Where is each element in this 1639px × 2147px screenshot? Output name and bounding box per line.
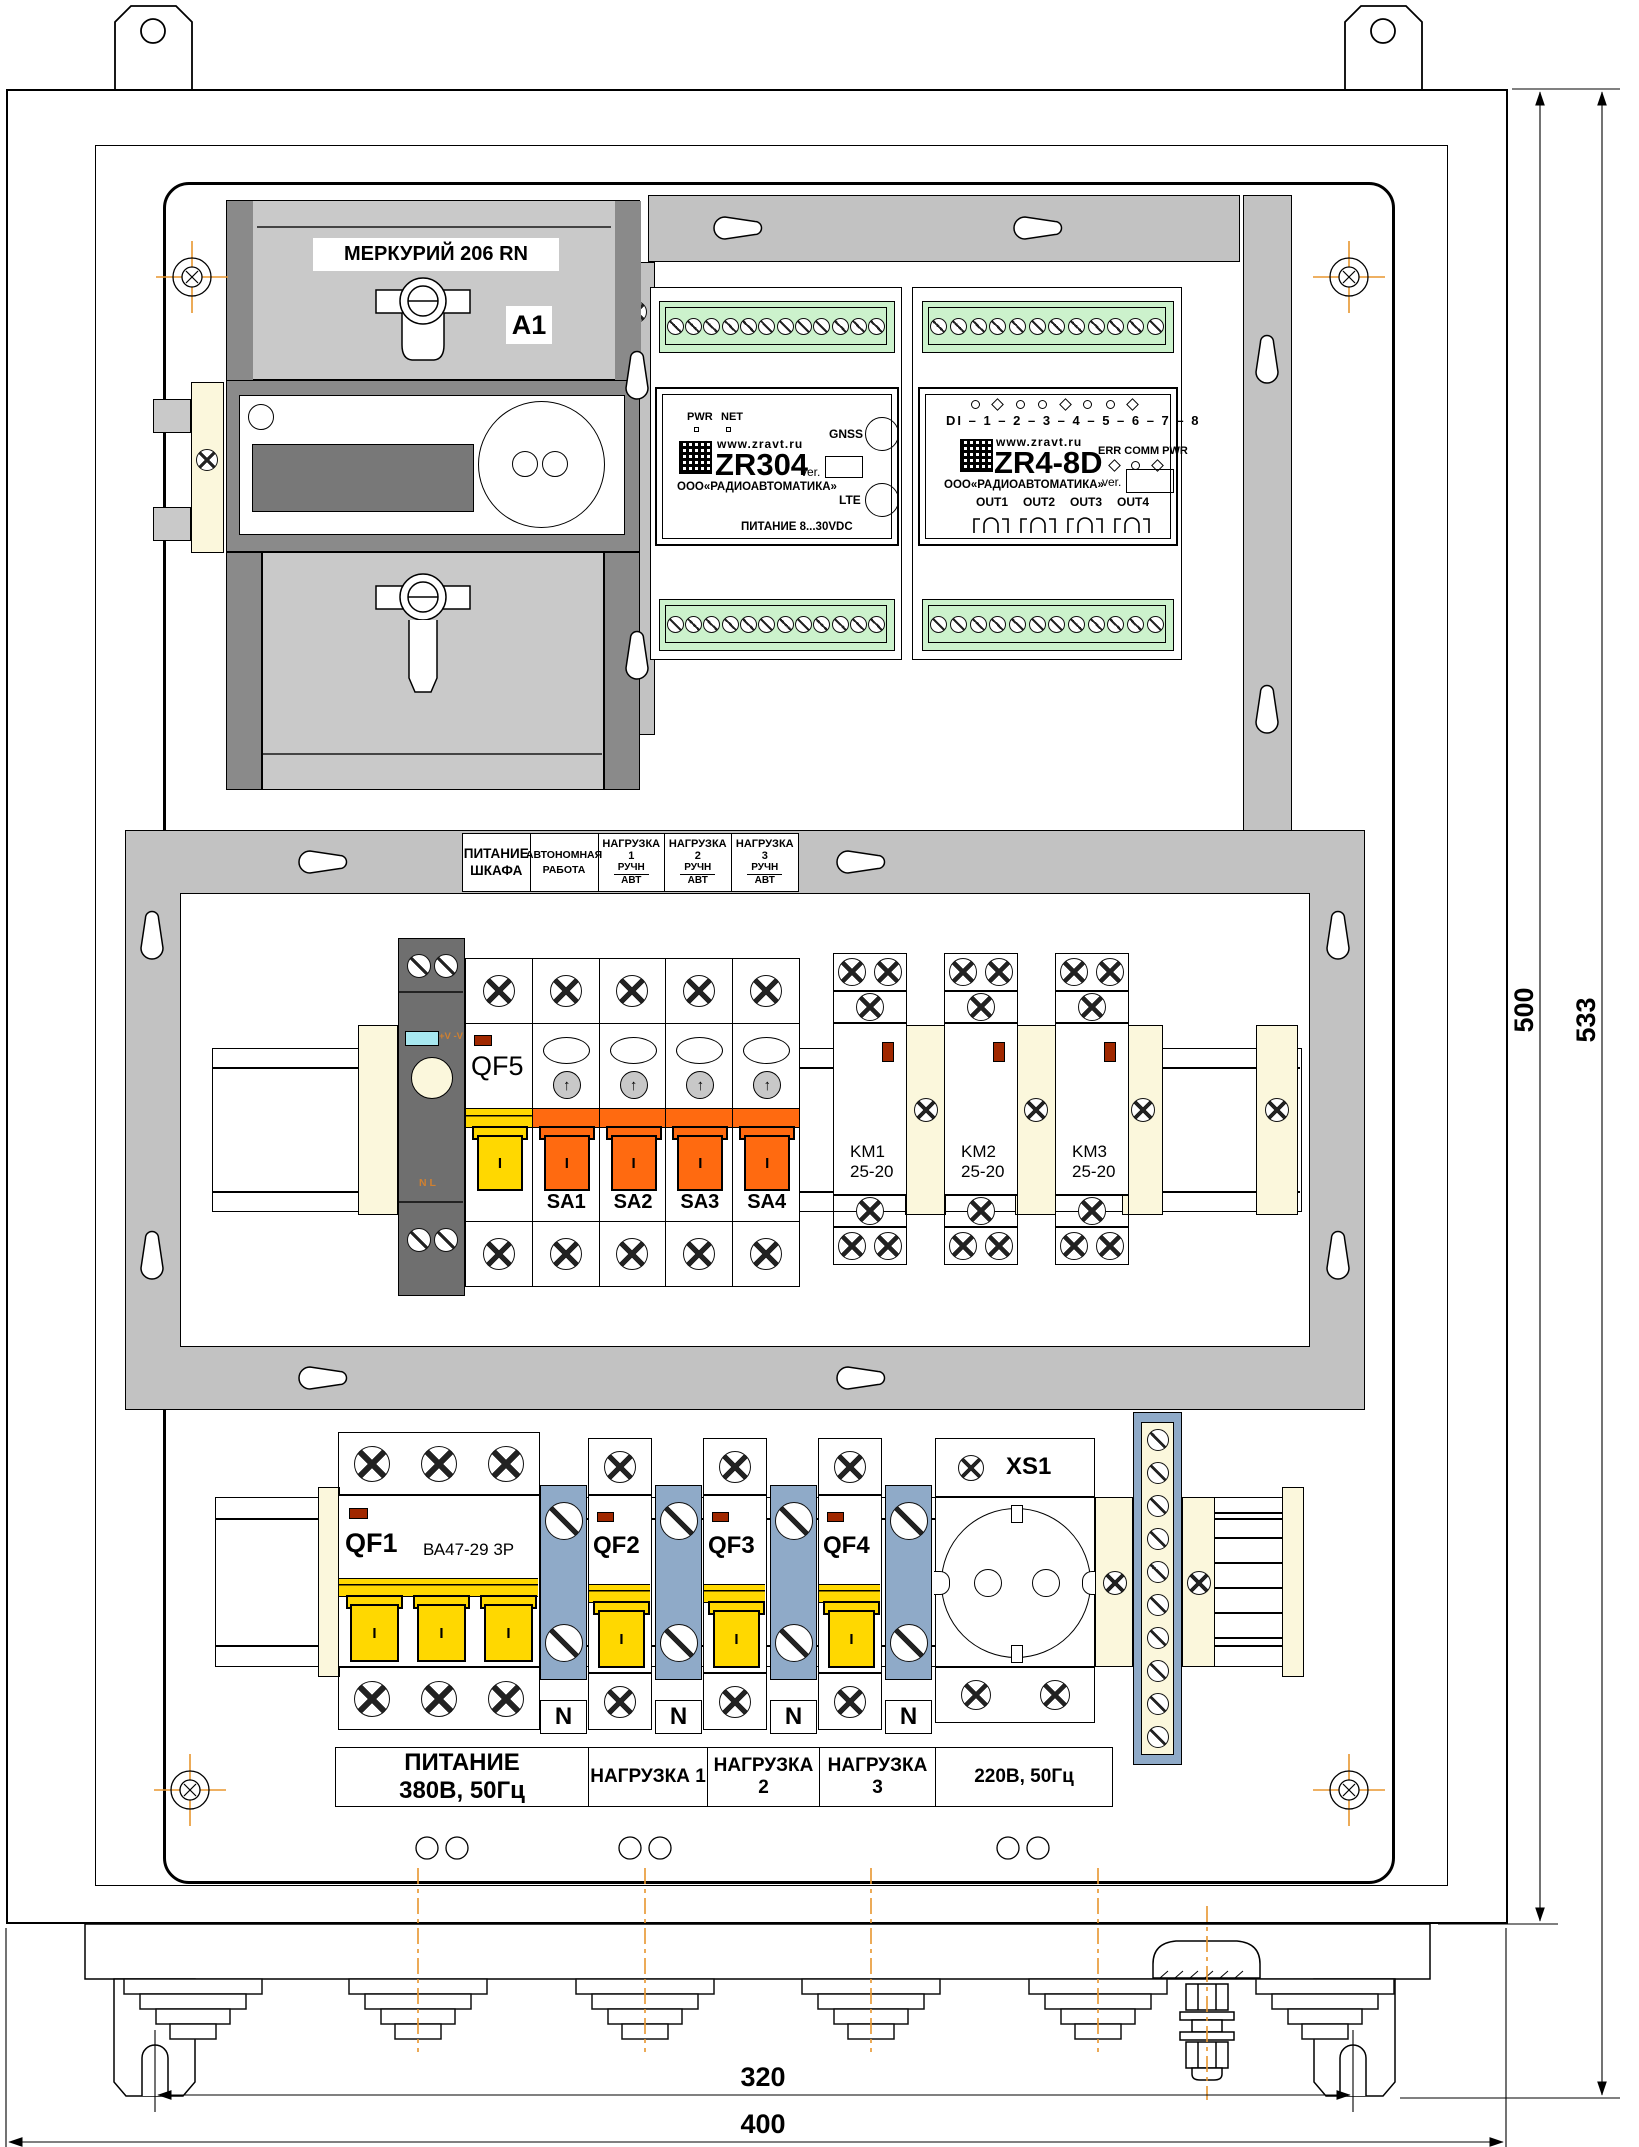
keyhole-slot: [837, 1367, 885, 1389]
mount-tab-top-right: [1345, 6, 1422, 89]
dim-320: 320: [740, 2062, 785, 2092]
keyhole-slot: [141, 1232, 163, 1280]
drawing-overlay: 500 533 320 400: [0, 0, 1639, 2147]
keyhole-slot: [1014, 217, 1062, 239]
door-holes: [416, 1837, 1049, 1859]
mount-tab-top-left: [115, 6, 192, 89]
meter-seal-screw-bottom: [376, 574, 470, 692]
keyhole-slot: [626, 632, 648, 680]
panel-screw-crosshair: [1313, 241, 1385, 313]
keyhole-slot: [299, 851, 347, 873]
dim-500: 500: [1509, 987, 1539, 1032]
panel-screw-crosshair: [1313, 1754, 1385, 1826]
dimension-lines: [6, 89, 1620, 2147]
keyhole-slot: [626, 352, 648, 400]
dim-400: 400: [740, 2109, 785, 2139]
dim-533: 533: [1571, 997, 1601, 1042]
meter-seal-screw-top: [376, 278, 470, 360]
panel-screw-crosshair: [156, 241, 228, 313]
keyhole-slot: [1327, 912, 1349, 960]
keyhole-slot: [714, 217, 762, 239]
keyhole-slot: [837, 851, 885, 873]
keyhole-slot: [141, 912, 163, 960]
keyhole-slot: [299, 1367, 347, 1389]
keyhole-slot: [1327, 1232, 1349, 1280]
keyhole-slot: [1256, 686, 1278, 734]
panel-screw-crosshair: [154, 1754, 226, 1826]
cabinet-drawing: МЕРКУРИЙ 206 RN A1: [0, 0, 1639, 2147]
keyhole-slot: [1256, 336, 1278, 384]
